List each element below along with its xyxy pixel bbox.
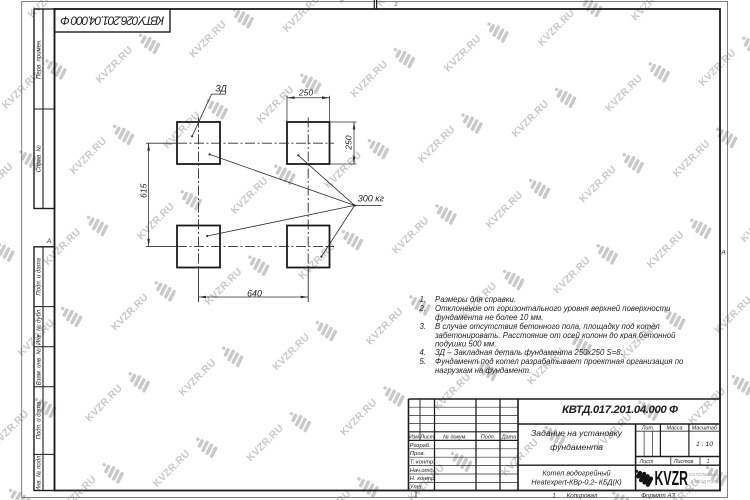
svg-text:1: 1 [552,492,556,499]
svg-text:2.: 2. [418,304,426,313]
svg-text:Пров.: Пров. [410,451,425,457]
svg-text:KVZR.RU: KVZR.RU [417,124,458,165]
svg-text:KVZR.RU: KVZR.RU [604,73,645,114]
svg-text:KVZR.RU: KVZR.RU [281,0,322,35]
svg-text:250: 250 [344,135,354,151]
svg-text:ЗАВОД РЭП: ЗАВОД РЭП [690,479,717,484]
svg-text:KVZR.RU: KVZR.RU [687,386,728,427]
svg-text:Масштаб: Масштаб [692,426,718,432]
svg-text:фундамента не более 10 мм.: фундамента не более 10 мм. [435,313,543,322]
svg-text:KVZR.RU: KVZR.RU [84,383,125,424]
svg-text:КОТЕЛЬНЫЙ: КОТЕЛЬНЫЙ [689,470,719,477]
svg-text:KVZR.RU: KVZR.RU [578,164,619,205]
svg-text:КВТУ.026.201.04.000 Ф: КВТУ.026.201.04.000 Ф [60,14,164,28]
svg-text:KVZR.RU: KVZR.RU [136,201,177,242]
svg-text:KVZR.RU: KVZR.RU [68,136,109,177]
svg-text:Листов: Листов [673,459,694,465]
svg-text:ЗД – Закладная деталь фундамен: ЗД – Закладная деталь фундамента 250х250… [435,348,623,357]
svg-text:KVZR.RU: KVZR.RU [671,138,712,179]
svg-text:KVZR.RU: KVZR.RU [271,332,312,373]
svg-text:KVZR.RU: KVZR.RU [510,99,551,140]
svg-text:Формат А3: Формат А3 [641,492,675,499]
svg-text:Изм: Изм [409,434,419,440]
svg-text:Масса: Масса [667,426,683,432]
svg-text:250: 250 [298,87,314,97]
svg-text:4.: 4. [419,348,426,357]
svg-text:KVZR.RU: KVZR.RU [443,33,484,74]
svg-text:KVZR.RU: KVZR.RU [552,255,593,296]
svg-text:Т. контр.: Т. контр. [410,460,435,466]
svg-text:Фундамент под котел разрабатыв: Фундамент под котел разрабатывает проект… [435,357,684,366]
svg-text:нагрузкам на фундамент.: нагрузкам на фундамент. [435,366,531,375]
svg-text:KVZR.RU: KVZR.RU [297,241,338,282]
svg-text:KVZR.RU: KVZR.RU [697,47,738,88]
svg-text:KVZR.RU: KVZR.RU [0,409,31,450]
svg-text:KVZR.RU: KVZR.RU [0,161,16,202]
svg-text:Копировал: Копировал [567,492,598,499]
svg-text:Лист: Лист [639,459,654,465]
svg-text:300 кг: 300 кг [358,193,385,203]
svg-text:KVZR.RU: KVZR.RU [484,190,525,231]
svg-text:KVZR.RU: KVZR.RU [255,84,296,125]
svg-text:KVZR.RU: KVZR.RU [739,204,750,245]
svg-text:KVZR.RU: KVZR.RU [188,19,229,60]
svg-text:Heatexpert-КВр-0,2- КБД(К): Heatexpert-КВр-0,2- КБД(К) [531,477,621,486]
svg-text:Дата: Дата [501,434,516,440]
svg-text:Справ. №: Справ. № [36,145,43,173]
svg-text:1 : 10: 1 : 10 [696,441,713,448]
svg-text:В случае отсутствия бетонного: В случае отсутствия бетонного пола, площ… [435,322,660,331]
svg-text:KVZR.RU: KVZR.RU [339,397,380,438]
svg-text:5.: 5. [419,357,426,366]
svg-text:Подп. и дата: Подп. и дата [37,257,43,295]
svg-text:KVZR: KVZR [655,467,688,490]
svg-text:А: А [46,238,51,245]
svg-text:Размеры для справки.: Размеры для справки. [435,295,516,304]
svg-text:Подп.: Подп. [481,434,495,440]
svg-text:Инв. № дубл.: Инв. № дубл. [36,308,43,345]
svg-text:1: 1 [707,459,710,465]
svg-text:KVZR.RU: KVZR.RU [713,295,750,336]
svg-text:KVZR.RU: KVZR.RU [500,437,541,478]
svg-text:3.: 3. [419,322,426,331]
svg-text:615: 615 [138,183,148,198]
svg-text:Отклонение от горизонтального: Отклонение от горизонтального уровня вер… [435,304,671,313]
svg-text:ЗД: ЗД [215,84,227,94]
svg-text:KVZR.RU: KVZR.RU [536,8,577,49]
svg-text:KVZR.RU: KVZR.RU [1,70,42,111]
svg-text:забетонировать. Расстояние от: забетонировать. Расстояние от осей колон… [434,331,676,340]
svg-text:Разраб.: Разраб. [410,443,431,449]
svg-text:Лист: Лист [419,434,434,440]
svg-text:KVZR.RU: KVZR.RU [245,423,286,464]
svg-text:А: А [720,250,725,257]
svg-text:2: 2 [393,2,397,8]
svg-text:KVZR.RU: KVZR.RU [177,357,218,398]
svg-text:Перв. примен.: Перв. примен. [37,39,43,79]
svg-text:Задание на установку: Задание на установку [531,428,623,438]
svg-text:KVZR.RU: KVZR.RU [58,474,99,500]
svg-text:Взам. инв. №: Взам. инв. № [36,348,43,386]
svg-text:KVZR.RU: KVZR.RU [432,372,473,413]
svg-text:KVZR.RU: KVZR.RU [162,110,203,151]
svg-text:фундамента: фундамента [550,442,603,452]
svg-text:Инв. № подл.: Инв. № подл. [36,454,43,491]
svg-text:Утв.: Утв. [409,485,423,491]
svg-text:KVZR.RU: KVZR.RU [110,292,151,333]
svg-text:KVZR.RU: KVZR.RU [630,0,671,23]
svg-text:KVZR.RU: KVZR.RU [229,175,270,216]
svg-text:KVZR.RU: KVZR.RU [151,448,192,489]
svg-text:KVZR.RU: KVZR.RU [645,229,686,270]
svg-text:Лит.: Лит. [641,426,655,432]
svg-text:Н. контр.: Н. контр. [410,476,436,482]
svg-text:KVZR.RU: KVZR.RU [203,266,244,307]
svg-text:КВТД.017.201.04.000 Ф: КВТД.017.201.04.000 Ф [562,404,678,416]
svg-text:Подп. и дата: Подп. и дата [37,401,43,439]
svg-text:KVZR.RU: KVZR.RU [349,59,390,100]
svg-text:KVZR.RU: KVZR.RU [365,306,406,347]
svg-text:Котел водогрейный: Котел водогрейный [542,469,610,478]
svg-text:№ докум.: № докум. [443,434,467,440]
svg-text:KVZR.RU: KVZR.RU [94,45,135,86]
svg-text:640: 640 [247,288,262,298]
svg-text:Нач.отд.: Нач.отд. [410,468,434,474]
svg-text:KVZR.RU: KVZR.RU [391,215,432,256]
svg-text:1.: 1. [419,295,426,304]
